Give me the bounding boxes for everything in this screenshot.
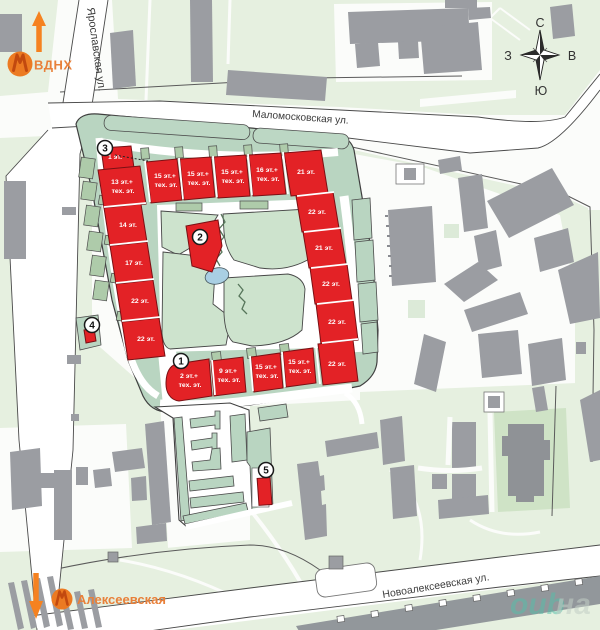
svg-text:тех. эт.: тех. эт. bbox=[155, 182, 178, 189]
svg-text:З: З bbox=[504, 49, 512, 63]
svg-text:тех. эт.: тех. эт. bbox=[112, 188, 135, 195]
svg-text:15 эт.+: 15 эт.+ bbox=[187, 171, 209, 178]
svg-text:15 эт.+: 15 эт.+ bbox=[255, 364, 277, 371]
svg-text:тех. эт.: тех. эт. bbox=[188, 180, 211, 187]
svg-text:Ю: Ю bbox=[535, 84, 548, 98]
svg-text:тех. эт.: тех. эт. bbox=[289, 368, 312, 375]
svg-text:тех. эт.: тех. эт. bbox=[179, 382, 202, 389]
svg-text:В: В bbox=[568, 49, 576, 63]
svg-text:тех. эт.: тех. эт. bbox=[222, 178, 245, 185]
svg-text:22 эт.: 22 эт. bbox=[137, 336, 155, 343]
svg-text:тех. эт.: тех. эт. bbox=[218, 377, 241, 384]
svg-text:21 эт.: 21 эт. bbox=[297, 169, 315, 176]
svg-text:С: С bbox=[535, 16, 544, 30]
svg-text:3: 3 bbox=[102, 144, 108, 155]
svg-text:15 эт.+: 15 эт.+ bbox=[221, 169, 243, 176]
svg-text:тех. эт.: тех. эт. bbox=[257, 176, 280, 183]
svg-text:21 эт.: 21 эт. bbox=[315, 245, 333, 252]
svg-text:ВДНХ: ВДНХ bbox=[34, 58, 73, 73]
svg-text:9 эт.+: 9 эт.+ bbox=[219, 368, 237, 375]
svg-text:Алексеевская: Алексеевская bbox=[77, 592, 166, 607]
svg-text:22 эт.: 22 эт. bbox=[328, 319, 346, 326]
svg-text:тех. эт.: тех. эт. bbox=[256, 373, 279, 380]
svg-text:22 эт.: 22 эт. bbox=[308, 209, 326, 216]
svg-text:4: 4 bbox=[89, 321, 95, 332]
svg-text:2 эт.+: 2 эт.+ bbox=[180, 373, 198, 380]
svg-text:17 эт.: 17 эт. bbox=[125, 260, 143, 267]
svg-text:2: 2 bbox=[197, 233, 203, 244]
svg-text:13 эт.+: 13 эт.+ bbox=[111, 179, 133, 186]
svg-text:1: 1 bbox=[178, 357, 184, 368]
svg-text:14 эт.: 14 эт. bbox=[119, 222, 137, 229]
svg-text:16 эт.+: 16 эт.+ bbox=[256, 167, 278, 174]
svg-text:на: на bbox=[556, 588, 591, 621]
svg-text:22 эт.: 22 эт. bbox=[322, 281, 340, 288]
svg-text:15 эт.+: 15 эт.+ bbox=[154, 173, 176, 180]
svg-text:5: 5 bbox=[263, 466, 269, 477]
svg-text:22 эт.: 22 эт. bbox=[131, 298, 149, 305]
svg-text:15 эт.+: 15 эт.+ bbox=[288, 359, 310, 366]
svg-text:22 эт.: 22 эт. bbox=[328, 361, 346, 368]
